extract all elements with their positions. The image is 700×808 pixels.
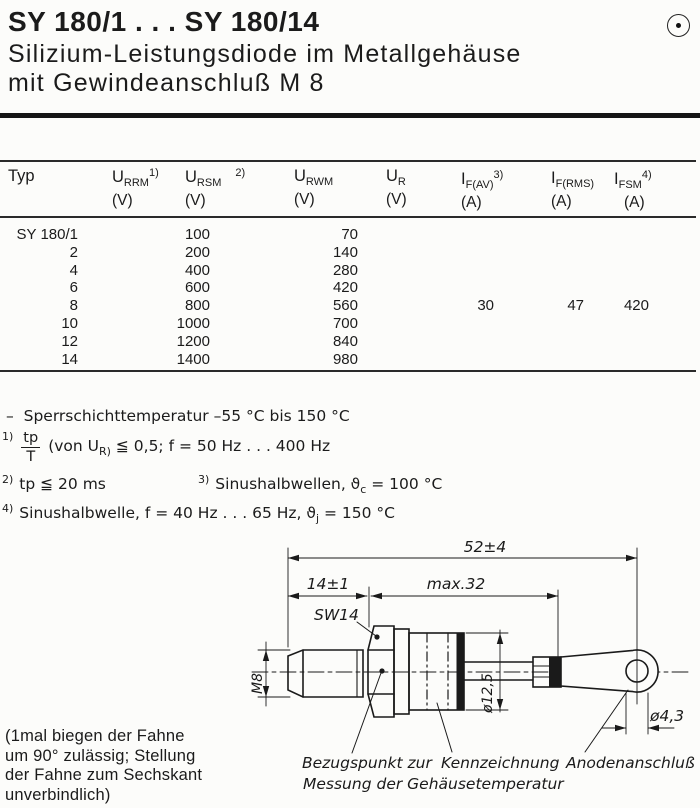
table-header-rule <box>0 216 696 218</box>
ratings-table-body: SY 180/110070 2200140 4400280 6600420 88… <box>8 226 668 368</box>
table-row: 2200140 <box>8 244 668 262</box>
footnote-1-text: (von UR) ≦ 0,5; f = 50 Hz . . . 400 Hz <box>48 437 330 458</box>
bend-remark-line: der Fahne zum Sechskant <box>5 766 202 786</box>
col-ifav-unit: (A) <box>461 194 503 212</box>
table-row: 6600420 <box>8 279 668 297</box>
threaded-stud <box>288 650 363 697</box>
table-row: SY 180/110070 <box>8 226 668 244</box>
subtitle-line-1: Silizium-Leistungsdiode im Metallgehäuse <box>8 40 522 69</box>
dim-hole-diameter: ø4,3 <box>649 707 684 725</box>
bend-remark-line: unverbindlich) <box>5 786 202 806</box>
table-row: 141400980 <box>8 351 668 369</box>
datasheet-page: SY 180/1 . . . SY 180/14 Silizium-Leistu… <box>0 0 700 808</box>
body-cylinder <box>409 633 464 710</box>
thread-size-label: M8 <box>250 673 266 694</box>
bend-remark-line: (1mal biegen der Fahne <box>5 727 202 747</box>
table-row: 121200840 <box>8 333 668 351</box>
col-ursm-unit: (V) <box>185 192 245 210</box>
col-header-ursm: URSM2) (V) <box>185 167 245 210</box>
hex-size-label: SW14 <box>314 606 359 624</box>
circled-dot-center <box>676 23 681 28</box>
col-ifsm-symbol: IFSM4) <box>614 169 652 191</box>
title-rule <box>0 113 700 118</box>
circled-dot-icon <box>667 14 690 37</box>
col-header-ur: UR (V) <box>386 167 407 209</box>
note-junction-temperature: – Sperrschichttemperatur –55 °C bis 150 … <box>6 407 350 425</box>
col-ifsm-unit: (A) <box>614 194 652 212</box>
ref-point-label-line1: Bezugspunkt zur <box>302 754 433 772</box>
footnote-4: 4)Sinushalbwelle, f = 40 Hz . . . 65 Hz,… <box>2 502 395 525</box>
marking-label: Kennzeichnung <box>441 754 560 772</box>
sw14-reference-dot <box>374 634 379 639</box>
col-urwm-symbol: URWM <box>294 167 333 188</box>
col-urrm-symbol: URRM1) <box>112 167 159 189</box>
col-urwm-unit: (V) <box>294 191 333 209</box>
page-title: SY 180/1 . . . SY 180/14 <box>8 6 319 38</box>
table-row: 4400280 <box>8 262 668 280</box>
page-subtitle: Silizium-Leistungsdiode im Metallgehäuse… <box>8 40 522 98</box>
tp-over-T-fraction: tpT <box>21 430 40 465</box>
col-header-urrm: URRM1) (V) <box>112 167 159 210</box>
table-top-rule <box>0 160 696 162</box>
bend-remark-line: um 90° zulässig; Stellung <box>5 747 202 767</box>
dim-overall-length: 52±4 <box>464 538 507 556</box>
col-ifrms-symbol: IF(RMS) <box>551 169 594 190</box>
dim-body-diameter: ø12,5 <box>480 673 496 714</box>
bend-remark: (1mal biegen der Fahne um 90° zulässig; … <box>5 727 202 805</box>
col-header-ifsm: IFSM4) (A) <box>614 169 652 212</box>
crimp-band <box>549 657 561 687</box>
case-temp-reference-dot <box>379 668 384 673</box>
package-outline-drawing: 52±4 14±1 max.32 SW14 M8 ø12,5 ø4,3 Bezu… <box>240 533 700 805</box>
ref-point-label-line2: Messung der Gehäusetemperatur <box>303 775 565 793</box>
col-typ-label: Typ <box>8 167 35 185</box>
body-end-band <box>457 633 465 710</box>
dim-stud-length: 14±1 <box>307 575 350 593</box>
col-header-urwm: URWM (V) <box>294 167 333 209</box>
table-row: 88005603047420 <box>8 297 668 315</box>
col-ur-symbol: UR <box>386 167 407 188</box>
footnote-3: 3)Sinushalbwellen, ϑc = 100 °C <box>198 473 442 496</box>
col-urrm-unit: (V) <box>112 192 159 210</box>
anode-connection-label: Anodenanschluß <box>565 754 695 772</box>
col-ifav-symbol: IF(AV)3) <box>461 169 503 191</box>
table-bottom-rule <box>0 370 696 372</box>
footnote-1: 1)tpT(von UR) ≦ 0,5; f = 50 Hz . . . 400… <box>2 430 330 465</box>
footnote-2: 2)tp ≦ 20 ms <box>2 473 106 493</box>
table-row: 101000700 <box>8 315 668 333</box>
flange <box>394 629 409 714</box>
subtitle-line-2: mit Gewindeanschluß M 8 <box>8 69 522 98</box>
col-ifrms-unit: (A) <box>551 193 594 211</box>
dim-body-length: max.32 <box>427 575 485 593</box>
col-header-typ: Typ <box>8 167 35 186</box>
col-ursm-symbol: URSM2) <box>185 167 245 189</box>
col-header-ifrms: IF(RMS) (A) <box>551 169 594 211</box>
col-header-ifav: IF(AV)3) (A) <box>461 169 503 212</box>
col-ur-unit: (V) <box>386 191 407 209</box>
